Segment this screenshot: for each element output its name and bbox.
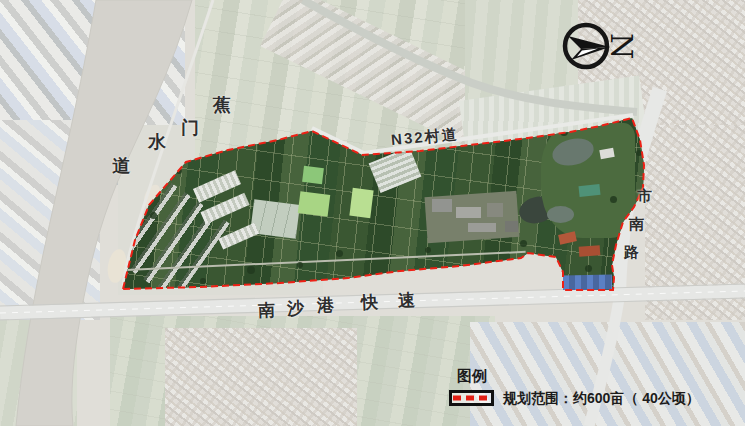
expressway-label-char: 速 bbox=[398, 292, 416, 310]
legend-row: 规划范围：约600亩（ 40公顷） bbox=[449, 390, 700, 407]
shinan-road-label-char: 南 bbox=[629, 216, 644, 231]
river-label-char: 道 bbox=[112, 157, 130, 175]
shinan-road-label-char: 路 bbox=[624, 244, 639, 259]
expressway-label-char: 沙 bbox=[287, 300, 305, 318]
overlay-layer: N bbox=[0, 0, 745, 426]
legend-boundary-label: 规划范围：约600亩（ 40公顷） bbox=[503, 390, 700, 407]
planning-map: N 蕉 门 水 道 N32村道 市 南 路 南 沙 港 快 速 图例 规划范围：… bbox=[0, 0, 745, 426]
expressway-label-char: 港 bbox=[317, 297, 335, 315]
shinan-road-label-char: 市 bbox=[637, 188, 652, 203]
legend-dash-line bbox=[453, 396, 490, 401]
legend: 图例 规划范围：约600亩（ 40公顷） bbox=[449, 368, 700, 407]
planning-boundary bbox=[123, 118, 644, 290]
expressway-label-char: 南 bbox=[258, 302, 276, 320]
north-letter: N bbox=[604, 33, 639, 59]
legend-title: 图例 bbox=[457, 368, 700, 383]
river-label-char: 水 bbox=[148, 133, 166, 151]
expressway-label-char: 快 bbox=[361, 294, 379, 312]
legend-boundary-swatch bbox=[449, 390, 494, 406]
river-label-char: 门 bbox=[181, 119, 199, 137]
river-label-char: 蕉 bbox=[213, 96, 231, 114]
north-arrow: N bbox=[565, 25, 639, 67]
